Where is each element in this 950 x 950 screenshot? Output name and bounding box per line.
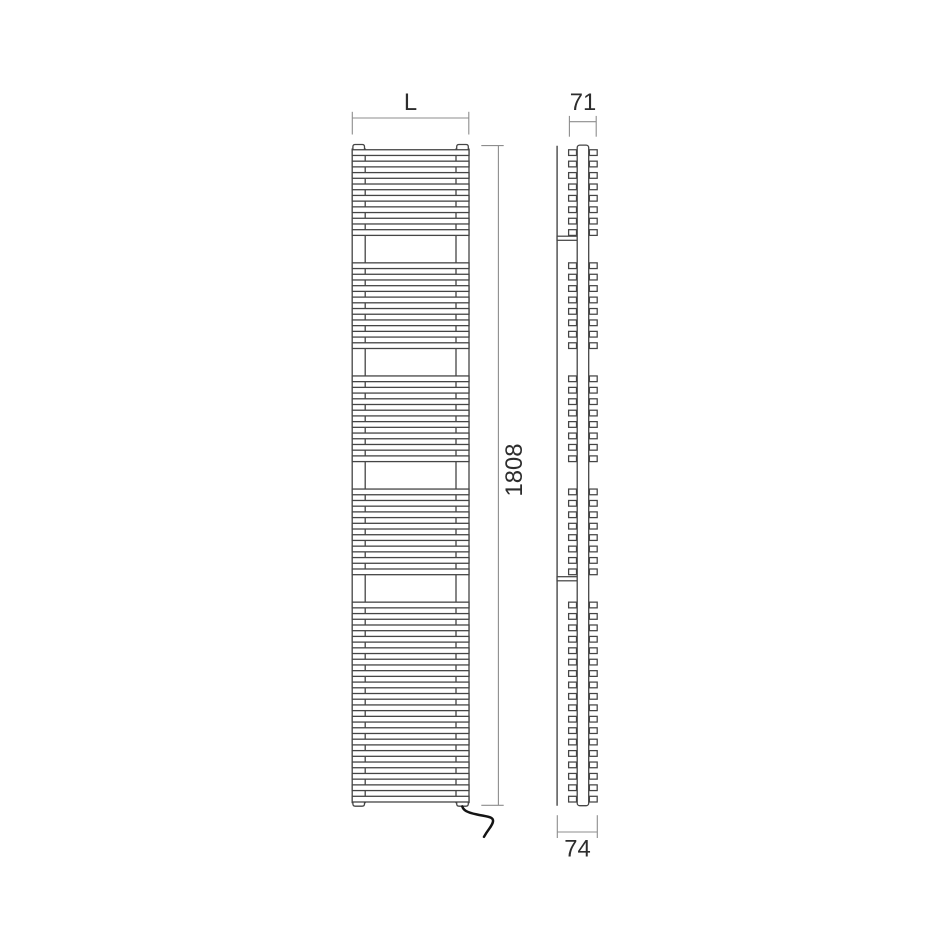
svg-text:71: 71 <box>570 89 596 116</box>
svg-text:1808: 1808 <box>501 444 528 497</box>
svg-text:L: L <box>404 89 417 116</box>
svg-text:74: 74 <box>564 836 590 863</box>
